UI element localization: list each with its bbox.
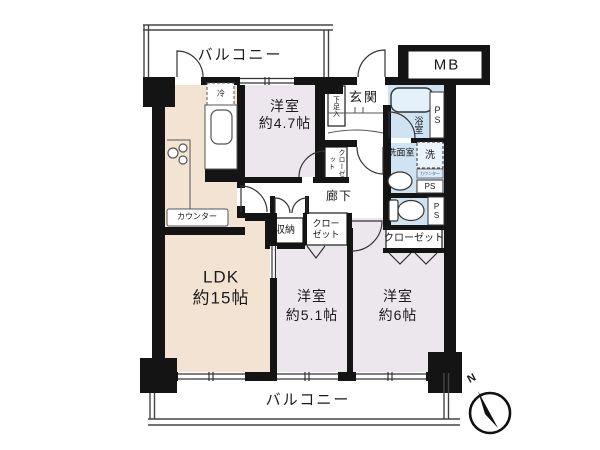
counter-label: カウンター	[177, 213, 217, 221]
pipe-space-mid-label: PS	[425, 183, 436, 191]
balcony-bottom-label: バルコニー	[266, 393, 351, 408]
compass-icon	[470, 391, 510, 433]
closet-51-label-line2: ゼット	[312, 231, 339, 240]
fridge-label: 冷	[217, 90, 225, 98]
bathroom-label: 浴室	[414, 116, 423, 134]
front-door-arc	[358, 50, 385, 77]
ldk-name-label: LDK	[203, 269, 239, 286]
west51-size-label: 約5.1帖	[286, 308, 338, 322]
washroom-label: 洗面室	[387, 149, 414, 158]
shoe-box-label: 下足入	[333, 89, 340, 123]
entrance-label: 玄関	[349, 91, 379, 104]
window-west51-bottom	[277, 372, 338, 381]
west47-name-label: 洋室	[270, 99, 300, 113]
washbasin-icon	[388, 172, 412, 190]
hall-door-arc	[357, 147, 383, 174]
west47-size-label: 約4.7帖	[259, 116, 311, 130]
entrance-step-curve	[328, 130, 383, 133]
closet-6-label: クローゼット	[384, 234, 444, 244]
pipe-space-top-label: PS	[433, 105, 442, 125]
west51-name-label: 洋室	[297, 289, 327, 303]
toilet-icon	[389, 200, 424, 221]
closet-47-label: クローゼット	[326, 149, 346, 177]
meter-box-label: MB	[434, 58, 461, 73]
window-west6-bottom	[356, 372, 426, 381]
pipe-space-low-label: PS	[432, 202, 440, 220]
storage-label: 収納	[275, 226, 295, 236]
ldk-size-label: 約15帖	[193, 290, 250, 307]
floorplan-canvas: バルコニー MB 玄関 下足入 洋室 約4.7帖 冷 クローゼット 廊下 浴室 …	[0, 0, 600, 450]
west6-size-label: 約6帖	[379, 308, 418, 322]
kitchen-sink-icon	[211, 110, 232, 144]
washer-counter-label: カウンター	[420, 172, 440, 176]
window-west47-top	[240, 77, 294, 85]
window-ldk-bottom	[178, 372, 245, 381]
hallway-label: 廊下	[326, 190, 352, 202]
storage-double-door	[275, 198, 307, 213]
closet-51-label-line1: クロー	[312, 220, 339, 229]
floorplan-drawing	[0, 0, 600, 450]
west6-name-label: 洋室	[383, 289, 413, 303]
bathtub-icon	[391, 88, 433, 112]
balcony-top-label: バルコニー	[198, 48, 283, 63]
sliding-door-ldk-west51	[270, 246, 277, 278]
washer-label: 洗	[425, 151, 435, 161]
